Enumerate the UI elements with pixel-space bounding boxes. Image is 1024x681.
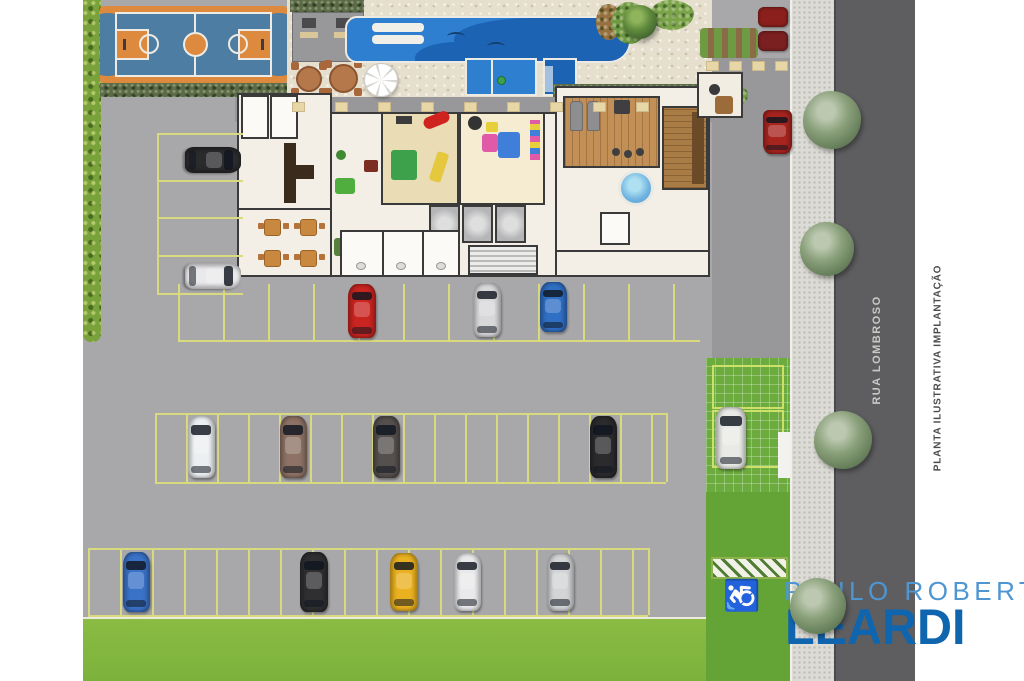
parking-line <box>310 413 312 482</box>
brown-car <box>280 416 307 478</box>
car-roof <box>206 268 222 284</box>
parking-line <box>504 548 506 615</box>
parking-line <box>673 284 675 340</box>
car-windshield <box>766 117 787 124</box>
parking-line <box>157 133 159 293</box>
street-name-label: RUA LOMBROSO <box>871 295 883 404</box>
party-chair <box>319 254 325 260</box>
party-chair <box>283 254 289 260</box>
red-van <box>763 110 792 154</box>
car-roof <box>193 437 209 454</box>
toy-yellow-bench <box>429 151 450 183</box>
car-roof <box>459 573 475 589</box>
jacuzzi <box>618 170 654 206</box>
main-pool <box>345 16 631 63</box>
red-car <box>348 284 376 338</box>
tree <box>623 5 657 39</box>
car-windshield <box>191 425 211 434</box>
parking-line <box>248 548 250 615</box>
pavement-marker <box>550 102 563 112</box>
kitchen-island <box>284 143 296 203</box>
car-windshield <box>593 466 613 473</box>
spa-restroom <box>600 212 630 245</box>
parking-line <box>268 284 270 340</box>
car-roof <box>128 572 144 589</box>
parking-line <box>536 548 538 615</box>
parking-line <box>152 548 154 615</box>
pavement-marker <box>335 102 348 112</box>
parking-line <box>527 413 529 482</box>
tree <box>790 578 846 634</box>
kitchen-wall <box>237 208 332 210</box>
lounge-sofa <box>335 178 355 194</box>
car-roof <box>378 437 394 454</box>
court-field <box>115 12 272 77</box>
car-windshield <box>191 466 211 473</box>
white-car <box>716 407 746 469</box>
party-chair <box>294 223 300 229</box>
car-windshield <box>189 266 196 285</box>
grill-bench-1 <box>300 32 318 38</box>
car-roof <box>306 572 323 589</box>
left-hedge <box>83 0 101 342</box>
parking-line <box>216 548 218 615</box>
kids-shelf <box>530 120 540 160</box>
car-windshield <box>352 327 373 333</box>
toy-play-mat <box>391 150 417 180</box>
parking-line <box>155 413 157 482</box>
kids-room <box>459 112 545 205</box>
car-roof <box>396 573 413 589</box>
grill-hedge <box>290 0 364 12</box>
kitchen-counter <box>296 165 314 179</box>
parking-line <box>496 413 498 482</box>
car-windshield <box>283 466 303 473</box>
party-chair <box>258 223 264 229</box>
car-roof <box>722 428 740 445</box>
car-roof <box>768 125 785 137</box>
spa-lounger-1 <box>570 101 583 131</box>
dolphin-motif <box>487 42 505 51</box>
service-wall <box>382 232 384 275</box>
car-windshield <box>224 150 232 169</box>
pavement-marker <box>706 61 719 71</box>
parking-line <box>313 284 315 340</box>
silver-car <box>473 283 501 337</box>
party-chair <box>294 254 300 260</box>
umbrella <box>364 63 398 97</box>
patio-table-1 <box>296 66 322 92</box>
parking-line <box>248 413 250 482</box>
kids-table-pink <box>482 134 498 152</box>
service-rooms <box>340 230 460 277</box>
spa-stool <box>624 150 632 158</box>
blue-car <box>123 552 150 612</box>
toy-red-lounger <box>422 109 452 130</box>
parking-line <box>155 413 666 415</box>
elevator-2 <box>462 205 493 243</box>
pavement-marker <box>729 61 742 71</box>
spa-table <box>614 100 630 114</box>
car-windshield <box>126 561 146 570</box>
black-car <box>590 416 617 478</box>
car-windshield <box>477 326 498 332</box>
gate-house <box>697 72 743 118</box>
building-right-terrace <box>555 250 710 277</box>
car-windshield <box>766 145 787 150</box>
hoop-left <box>123 39 126 50</box>
parking-line <box>157 133 243 135</box>
car-windshield <box>394 562 415 571</box>
car-roof <box>354 302 371 317</box>
parking-line <box>280 548 282 615</box>
motorcycle <box>758 31 788 51</box>
pavement-marker <box>752 61 765 71</box>
parking-line <box>465 413 467 482</box>
black-car <box>185 147 241 173</box>
parking-line <box>178 340 700 342</box>
parking-line <box>376 548 378 615</box>
pavement-marker <box>775 61 788 71</box>
car-windshield <box>720 416 742 425</box>
tree <box>800 222 854 276</box>
car-windshield <box>477 291 498 299</box>
court-center-circle <box>183 32 208 57</box>
car-windshield <box>457 599 477 606</box>
parking-line <box>600 548 602 615</box>
kids-round-table <box>468 116 482 130</box>
parking-line <box>403 413 405 482</box>
toy-tv-bench <box>396 116 412 124</box>
car-windshield <box>543 322 563 328</box>
gate-grill <box>709 84 720 95</box>
parking-line <box>88 615 648 617</box>
parking-line <box>440 548 442 615</box>
parking-line <box>223 284 225 340</box>
parking-line <box>88 548 90 615</box>
patio-chair <box>354 88 362 96</box>
parking-line <box>403 284 405 340</box>
lounge-plant <box>336 150 346 160</box>
patio-chair <box>324 60 332 68</box>
car-windshield <box>304 600 325 607</box>
kids-table-yellow <box>486 122 498 132</box>
parking-line <box>648 548 650 615</box>
tree <box>814 411 872 469</box>
parking-line <box>341 413 343 482</box>
kids-pool <box>465 58 537 96</box>
party-chair <box>283 223 289 229</box>
parking-line <box>157 217 243 219</box>
parking-line <box>184 548 186 615</box>
car-windshield <box>126 600 146 607</box>
pavement-marker <box>378 102 391 112</box>
car-windshield <box>720 457 742 464</box>
parking-line <box>583 284 585 340</box>
car-roof <box>552 573 568 589</box>
elevator-3 <box>495 205 526 243</box>
car-windshield <box>457 562 477 571</box>
black-car <box>300 552 328 612</box>
party-table <box>300 219 317 236</box>
parking-line <box>157 180 243 182</box>
hoop-right <box>261 39 264 50</box>
party-chair <box>319 223 325 229</box>
car-windshield <box>543 290 563 298</box>
turtle-motif <box>497 76 506 85</box>
parking-line <box>88 548 648 550</box>
stairwell <box>468 245 538 275</box>
service-wall <box>422 232 424 275</box>
parking-line <box>157 293 243 295</box>
parking-line <box>448 284 450 340</box>
motorcycle <box>758 7 788 27</box>
garden-planter-rows <box>700 28 758 58</box>
tree <box>803 91 861 149</box>
car-windshield <box>376 466 396 473</box>
car-roof <box>545 299 561 313</box>
car-windshield <box>550 562 570 571</box>
handicap-icon: ♿ <box>728 580 762 614</box>
wc-fixture <box>356 262 366 270</box>
pavement-marker <box>464 102 477 112</box>
pavement-marker <box>421 102 434 112</box>
paver-spot-1 <box>712 365 784 409</box>
spa-pool-step <box>545 66 553 92</box>
crosswalk-hatch <box>711 557 788 579</box>
sauna <box>662 106 708 190</box>
pavement-marker <box>636 102 649 112</box>
car-windshield <box>283 425 303 434</box>
pool-step-2 <box>372 35 424 44</box>
silver-car <box>547 553 574 611</box>
white-car <box>185 263 241 289</box>
parking-line <box>666 413 668 482</box>
gate-table <box>715 96 733 114</box>
party-table <box>264 250 281 267</box>
car-roof <box>285 437 301 454</box>
parking-line <box>157 255 243 257</box>
basketball-court <box>100 6 287 83</box>
spa-stool <box>636 148 644 156</box>
kids-pool-divider <box>491 60 493 94</box>
yellow-car <box>390 553 418 611</box>
court-arc-left <box>139 34 159 54</box>
parking-line <box>620 413 622 482</box>
car-windshield <box>376 425 396 434</box>
grill-table-1 <box>302 18 316 28</box>
parking-line <box>434 413 436 482</box>
parking-line <box>651 413 653 482</box>
patio-chair <box>291 62 299 70</box>
car-windshield <box>550 599 570 606</box>
wc-fixture <box>396 262 406 270</box>
car-windshield <box>189 150 196 169</box>
blue-car <box>540 282 567 332</box>
parking-line <box>558 413 560 482</box>
pavement-marker <box>507 102 520 112</box>
parking-line <box>632 548 634 615</box>
party-table <box>300 250 317 267</box>
lounge-table-1 <box>364 160 378 172</box>
gray-car <box>373 416 400 478</box>
dolphin-motif <box>447 32 465 41</box>
white-car <box>188 416 215 478</box>
sauna-bench <box>692 112 704 184</box>
car-windshield <box>304 561 325 570</box>
car-windshield <box>352 292 373 300</box>
site-plan: ♿ RUA LOMBROSO PLANTA ILUSTRATIVA IMPLAN… <box>0 0 1024 681</box>
bottom-grass-strip <box>83 617 710 681</box>
car-windshield <box>394 599 415 606</box>
parking-line <box>217 413 219 482</box>
pool-step-1 <box>372 23 424 32</box>
white-car <box>454 553 481 611</box>
pavement-marker <box>292 102 305 112</box>
party-chair <box>258 254 264 260</box>
car-windshield <box>224 266 232 285</box>
toy-room <box>381 112 459 205</box>
pavement-marker <box>593 102 606 112</box>
party-table <box>264 219 281 236</box>
plan-caption-label: PLANTA ILUSTRATIVA IMPLANTAÇÃO <box>933 265 944 471</box>
parking-line <box>178 284 180 340</box>
spa-stool <box>612 148 620 156</box>
car-windshield <box>593 425 613 434</box>
car-roof <box>206 152 222 168</box>
court-arc-right <box>228 34 248 54</box>
parking-line <box>155 482 666 484</box>
restroom-1 <box>241 95 269 139</box>
car-roof <box>595 437 611 454</box>
parking-line <box>628 284 630 340</box>
car-roof <box>479 301 496 316</box>
parking-line <box>344 548 346 615</box>
wc-fixture <box>436 262 446 270</box>
kids-table-blue <box>498 132 520 158</box>
